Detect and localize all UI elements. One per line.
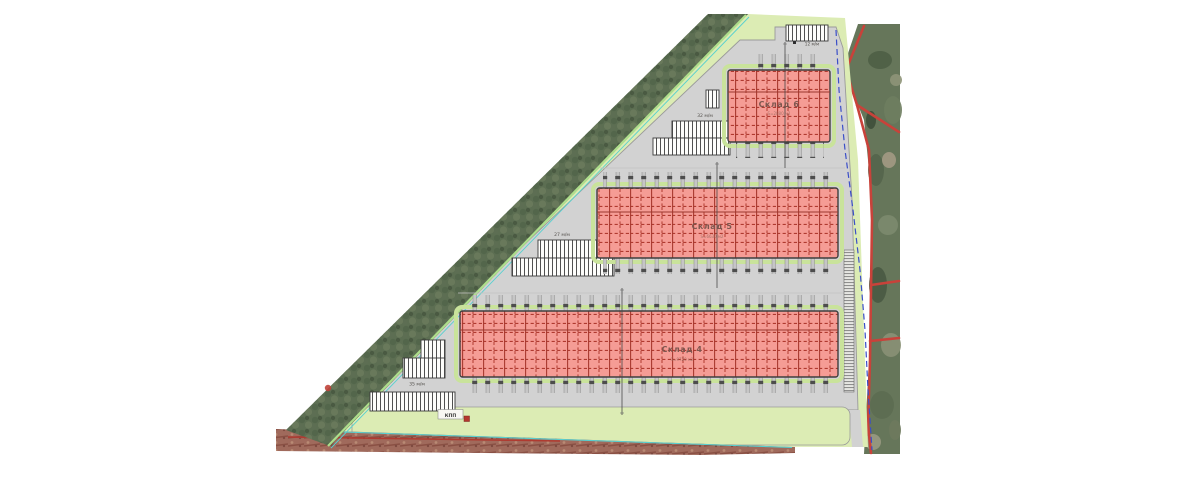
checkpoint-label: КПП [445, 413, 457, 419]
parking-row-south-b [403, 358, 445, 378]
parking-row-south-c [370, 392, 455, 411]
parking-row-north-a [706, 90, 719, 108]
parking-label-north: 32 м/м [697, 113, 713, 119]
parking-label-south: 35 м/м [409, 382, 425, 388]
dock-columns-north [756, 54, 816, 70]
building-area-label: S=2880 м2 [768, 111, 791, 116]
building-label: Склад 5 [692, 222, 733, 231]
dock-columns-north [466, 295, 832, 311]
red-mark-on-belt [325, 385, 331, 391]
parking-label-middle: 27 м/м [554, 232, 570, 238]
parking-row-north-c [653, 138, 730, 155]
site-plan-drawing: Склад 6 S=2880 м2 Склад 5 S=6630 м2 Скла… [0, 0, 1200, 486]
dock-columns-north [603, 172, 833, 188]
entry-count-marker [793, 41, 796, 44]
building-label: Склад 6 [759, 100, 800, 109]
building-label: Склад 4 [662, 345, 703, 354]
building-sklad-5: Склад 5 S=6630 м2 [593, 162, 842, 288]
dock-columns-south [736, 142, 824, 158]
dock-columns-south [466, 377, 832, 393]
parking-label-entry: 12 м/м [805, 42, 819, 47]
parking-row-entry [786, 25, 828, 41]
parking-row-north-b [672, 121, 730, 138]
building-area-label: S=6630 м2 [701, 234, 724, 239]
parking-row-south-a [421, 340, 445, 359]
site-plan-canvas: Склад 6 S=2880 м2 Склад 5 S=6630 м2 Скла… [0, 0, 1200, 486]
building-grid [460, 311, 838, 377]
building-area-label: S=9720 м2 [671, 357, 694, 362]
dock-columns-south [603, 258, 833, 274]
crosswalk-ladder-strip [844, 250, 854, 392]
checkpoint-gate-marker [464, 416, 470, 422]
